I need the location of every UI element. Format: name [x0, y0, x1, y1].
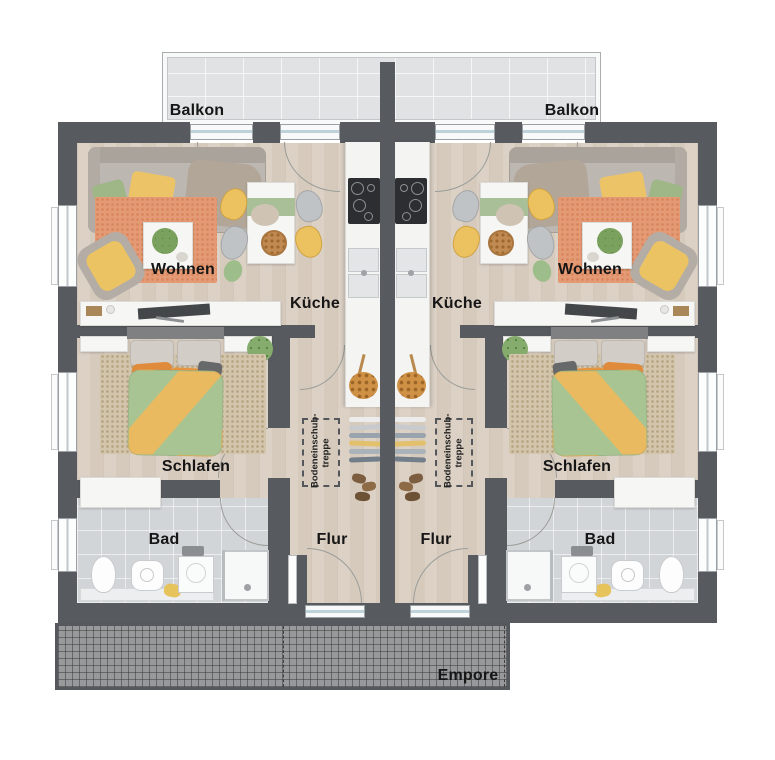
coat-hanger	[394, 456, 426, 462]
wall-hall-bath	[485, 478, 507, 603]
wall-top-stub	[495, 122, 522, 143]
empore-dash-line	[504, 626, 505, 687]
room-label-balkon-right: Balkon	[545, 102, 600, 120]
coat-hanger	[349, 417, 381, 422]
shower-glass	[222, 550, 225, 601]
detergent	[182, 546, 204, 556]
bed-headboard	[551, 327, 648, 339]
deco-books	[673, 306, 689, 316]
loft-ladder-label: Bodeneinschub- treppe	[443, 418, 466, 488]
wall-top-b	[392, 122, 435, 143]
bed-duvet	[551, 369, 647, 457]
room-label-flur-right: Flur	[420, 531, 451, 549]
bidet-drain	[621, 568, 635, 582]
coat-hanger	[349, 440, 381, 446]
burner	[351, 182, 364, 195]
room-label-balkon-left: Balkon	[170, 102, 225, 120]
room-label-empore: Empore	[438, 667, 499, 685]
sofa-backrest	[88, 147, 266, 163]
bidet-drain	[140, 568, 154, 582]
deco-roll	[660, 305, 669, 314]
coat-hanger	[394, 433, 426, 438]
window-bedroom	[698, 372, 717, 452]
wall-center	[380, 62, 395, 623]
fruit-bowl	[349, 372, 378, 399]
balcony-door	[190, 124, 253, 140]
loft-ladder-label: Bodeneinschub- treppe	[310, 418, 333, 488]
table-plant	[597, 228, 623, 254]
burner	[411, 182, 424, 195]
shoes	[355, 491, 371, 501]
floor-plan: Bodeneinschub- treppe Bodeneinschub- tre…	[0, 0, 775, 760]
table-plant	[152, 228, 178, 254]
shower-glass	[550, 550, 553, 601]
room-label-wohnen-right: Wohnen	[558, 261, 622, 279]
table-bouquet	[251, 204, 279, 226]
table-tray	[488, 230, 514, 256]
window-sill	[51, 207, 58, 285]
kitchen-sink	[348, 248, 379, 272]
sofa-backrest	[509, 147, 687, 163]
deco-books	[86, 306, 102, 316]
kitchen-sink	[396, 274, 427, 298]
window-sill	[51, 374, 58, 450]
room-label-kueche-right: Küche	[432, 295, 482, 313]
shower	[222, 550, 269, 601]
window-bath	[58, 518, 77, 572]
washer-drum	[186, 563, 206, 583]
toilet	[659, 556, 684, 593]
hall-mirror	[288, 555, 297, 604]
window-living	[58, 205, 77, 287]
coat-hanger	[394, 417, 426, 422]
window-sill	[717, 207, 724, 285]
deco-roll	[106, 305, 115, 314]
coat-hanger	[349, 433, 381, 438]
balcony-door	[280, 124, 340, 140]
loft-ladder-box-left: Bodeneinschub- treppe	[302, 418, 340, 487]
balcony-door	[522, 124, 585, 140]
room-label-kueche-left: Küche	[290, 295, 340, 313]
wall-hall-bath	[268, 478, 290, 603]
wardrobe	[80, 477, 161, 508]
washer-drum	[569, 563, 589, 583]
loft-ladder-box-right: Bodeneinschub- treppe	[435, 418, 473, 487]
balcony-door	[435, 124, 495, 140]
window-sill	[717, 520, 724, 570]
window-sill	[717, 374, 724, 450]
table-bouquet	[496, 204, 524, 226]
burner	[364, 212, 373, 221]
room-label-bad-right: Bad	[585, 531, 616, 549]
wall-top-a	[58, 122, 190, 143]
shower-drain	[524, 584, 531, 591]
bed-duvet	[127, 369, 223, 457]
wall-top-stub	[253, 122, 280, 143]
burner	[353, 199, 366, 212]
toilet	[91, 556, 116, 593]
room-label-schlafen-right: Schlafen	[543, 458, 611, 476]
shower	[506, 550, 553, 601]
window-bath	[698, 518, 717, 572]
nightstand	[647, 336, 695, 352]
fruit-bowl	[397, 372, 426, 399]
window-living	[698, 205, 717, 287]
burner	[367, 184, 375, 192]
burner	[409, 199, 422, 212]
burner	[402, 212, 411, 221]
window-sill	[51, 520, 58, 570]
burner	[400, 184, 408, 192]
hall-mirror	[478, 555, 487, 604]
room-label-flur-left: Flur	[316, 531, 347, 549]
bed-headboard	[127, 327, 224, 339]
table-tray	[261, 230, 287, 256]
kitchen-sink	[396, 248, 427, 272]
kitchen-sink	[348, 274, 379, 298]
room-label-bad-left: Bad	[149, 531, 180, 549]
coat-hanger	[349, 449, 381, 454]
wardrobe	[614, 477, 695, 508]
wall-top-b	[340, 122, 383, 143]
empore-dash-line	[283, 626, 284, 687]
faucet	[361, 270, 367, 276]
room-label-wohnen-left: Wohnen	[151, 261, 215, 279]
shower-drain	[244, 584, 251, 591]
room-label-schlafen-left: Schlafen	[162, 458, 230, 476]
entry-door	[410, 605, 470, 618]
window-bedroom	[58, 372, 77, 452]
faucet	[408, 270, 414, 276]
nightstand	[80, 336, 128, 352]
entry-door	[305, 605, 365, 618]
coat-hanger	[394, 449, 426, 454]
